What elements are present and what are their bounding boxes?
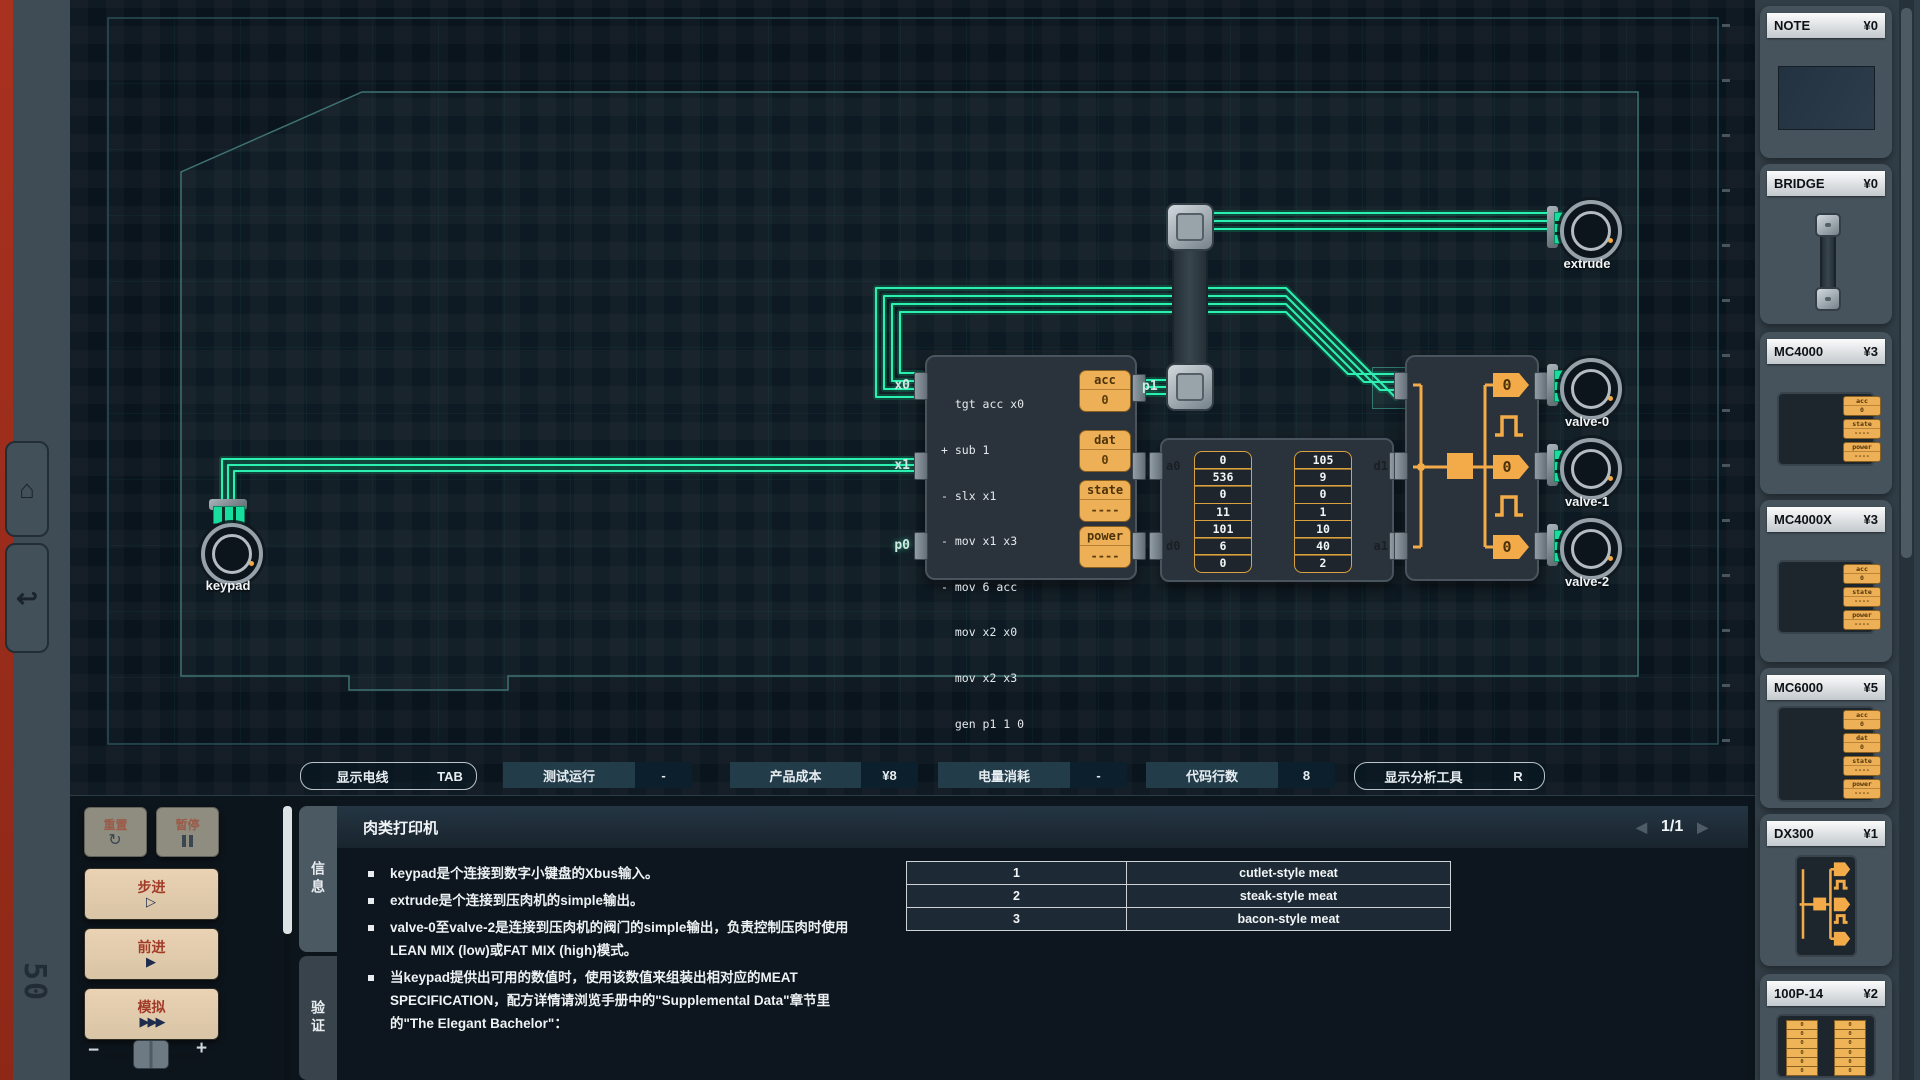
dx300-circuit-art: 0 0 0 <box>1407 357 1533 575</box>
dx300-pin-out1 <box>1534 452 1548 480</box>
ram-data-column: 105 9 0 1 10 40 2 <box>1294 451 1352 573</box>
ram-thumbnail: 00 00 00 00 00 00 <box>1776 1014 1876 1078</box>
shenzhen-io-window: tgt acc x0 + sub 1 - slx x1 - mov x1 x3 … <box>0 0 1920 1080</box>
svg-text:0: 0 <box>1502 458 1511 476</box>
reset-button[interactable]: 重置 ↻ <box>84 807 147 857</box>
info-scrollbar-thumb[interactable] <box>283 806 292 934</box>
chip-pin-x0 <box>914 372 928 400</box>
chip-pin-x3 <box>1132 532 1146 560</box>
pause-icon <box>182 835 193 847</box>
analysis-tools-chip[interactable]: 显示分析工具 R <box>1354 762 1545 790</box>
dat-register: dat 0 <box>1079 430 1131 472</box>
page-indicator: 1/1 <box>1661 818 1683 836</box>
advance-icon: ▶ <box>146 955 157 969</box>
page-next-icon[interactable]: ▶ <box>1697 819 1708 836</box>
mc6000-chip[interactable]: tgt acc x0 + sub 1 - slx x1 - mov x1 x3 … <box>925 355 1137 580</box>
port-label-x0: x0 <box>870 378 910 393</box>
reset-icon: ↻ <box>108 833 122 848</box>
bridge-thumbnail <box>1813 213 1839 307</box>
valve2-label: valve-2 <box>1537 574 1637 589</box>
table-row: 1 cutlet-style meat <box>907 862 1450 884</box>
pause-button[interactable]: 暂停 <box>156 807 219 857</box>
mc4000x-thumbnail: acc0 state---- power---- <box>1777 560 1875 634</box>
valve0-label: valve-0 <box>1537 414 1637 429</box>
product-cost-chip: 产品成本 ¥8 <box>730 762 918 788</box>
step-icon: ▷ <box>146 895 157 909</box>
table-row: 3 bacon-style meat <box>907 907 1450 930</box>
advance-button[interactable]: 前进 ▶ <box>84 928 219 980</box>
power-register: power ---- <box>1079 526 1131 568</box>
speed-slider-knob[interactable] <box>133 1040 169 1069</box>
table-row: 2 steak-style meat <box>907 884 1450 907</box>
puzzle-header: 肉类打印机 ◀ 1/1 ▶ <box>337 806 1748 848</box>
undo-icon: ↩ <box>16 583 38 614</box>
red-edge-stripe <box>0 0 13 1080</box>
keypad-label: keypad <box>178 578 278 593</box>
page-prev-icon[interactable]: ◀ <box>1636 819 1647 836</box>
chip-pin-p0 <box>914 532 928 560</box>
part-mc4000[interactable]: MC4000¥3 acc0 state---- power---- <box>1760 332 1892 494</box>
sidebar-scrollbar-thumb[interactable] <box>1901 8 1912 558</box>
puzzle-description: keypad是个连接到数字小键盘的Xbus输入。 extrude是个连接到压肉机… <box>368 862 868 1039</box>
lines-of-code-chip: 代码行数 8 <box>1146 762 1335 788</box>
valve0-connector <box>1560 358 1622 420</box>
dx300-pin-in2 <box>1394 532 1408 560</box>
dx300-expander[interactable]: 0 0 0 <box>1405 355 1539 581</box>
part-mc6000[interactable]: MC6000¥5 acc0 dat0 state---- power---- <box>1760 668 1892 808</box>
svg-text:0: 0 <box>1502 538 1511 556</box>
dx300-thumbnail <box>1795 855 1857 957</box>
port-label-p0: p0 <box>870 538 910 553</box>
part-note[interactable]: NOTE¥0 <box>1760 6 1892 158</box>
ram-port-label-d1: d1 <box>1358 459 1388 473</box>
keypad-plug <box>213 506 245 524</box>
ram-address-column: 0 536 0 11 101 6 0 <box>1194 451 1252 573</box>
meat-spec-table: 1 cutlet-style meat 2 steak-style meat 3… <box>906 861 1451 931</box>
valve2-connector <box>1560 518 1622 580</box>
home-icon: ⌂ <box>19 474 35 505</box>
circuit-board-canvas[interactable]: tgt acc x0 + sub 1 - slx x1 - mov x1 x3 … <box>70 0 1755 800</box>
acc-register: acc 0 <box>1079 370 1131 412</box>
tab-info[interactable]: 信息 <box>299 806 337 952</box>
speed-plus-button[interactable]: + <box>196 1038 207 1060</box>
dx300-pin-in1 <box>1394 452 1408 480</box>
state-register: state ---- <box>1079 480 1131 522</box>
undo-button[interactable]: ↩ <box>5 543 49 653</box>
ram-port-label-d0: d0 <box>1166 539 1196 553</box>
ram-pin-d0 <box>1149 532 1163 560</box>
bridge-cap-top <box>1166 203 1214 251</box>
chip-pin-x1 <box>914 452 928 480</box>
part-bridge[interactable]: BRIDGE¥0 <box>1760 164 1892 324</box>
part-mc4000x[interactable]: MC4000X¥3 acc0 state---- power---- <box>1760 500 1892 662</box>
extrude-label: extrude <box>1537 256 1637 271</box>
chip-pin-x2 <box>1132 452 1146 480</box>
keypad-connector <box>201 523 263 585</box>
valve1-label: valve-1 <box>1537 494 1637 509</box>
port-label-x1: x1 <box>870 458 910 473</box>
ram-pin-a0 <box>1149 452 1163 480</box>
part-100p14[interactable]: 100P-14¥2 00 00 00 00 00 00 <box>1760 974 1892 1080</box>
ram-port-label-a0: a0 <box>1166 459 1196 473</box>
test-run-chip[interactable]: 测试运行 - <box>503 762 692 788</box>
edge-ruler-ticks <box>1722 24 1730 744</box>
home-button[interactable]: ⌂ <box>5 441 49 537</box>
puzzle-title: 肉类打印机 <box>363 817 438 838</box>
simulate-button[interactable]: 模拟 ▶▶▶ <box>84 988 219 1040</box>
toggle-wires-chip[interactable]: 显示电线 TAB <box>300 762 477 790</box>
dx300-pin-in0 <box>1394 372 1408 400</box>
valve1-connector <box>1560 438 1622 500</box>
power-usage-chip: 电量消耗 - <box>938 762 1127 788</box>
step-button[interactable]: 步进 ▷ <box>84 868 219 920</box>
bridge-cap-bottom <box>1166 363 1214 411</box>
chip-code-editor[interactable]: tgt acc x0 + sub 1 - slx x1 - mov x1 x3 … <box>941 367 1024 762</box>
svg-text:0: 0 <box>1502 376 1511 394</box>
game-logo: 50 <box>16 962 52 1042</box>
part-dx300[interactable]: DX300¥1 <box>1760 814 1892 966</box>
simulate-icon: ▶▶▶ <box>140 1015 164 1029</box>
dx300-pin-out2 <box>1534 532 1548 560</box>
dx300-pin-out0 <box>1534 372 1548 400</box>
tab-verify[interactable]: 验证 <box>299 956 337 1080</box>
extrude-connector <box>1560 200 1622 262</box>
ram-port-label-a1: a1 <box>1358 539 1388 553</box>
mc6000-thumbnail: acc0 dat0 state---- power---- <box>1777 706 1875 802</box>
note-thumbnail <box>1778 66 1875 130</box>
speed-minus-button[interactable]: − <box>88 1040 99 1062</box>
mc4000-thumbnail: acc0 state---- power---- <box>1777 392 1875 466</box>
